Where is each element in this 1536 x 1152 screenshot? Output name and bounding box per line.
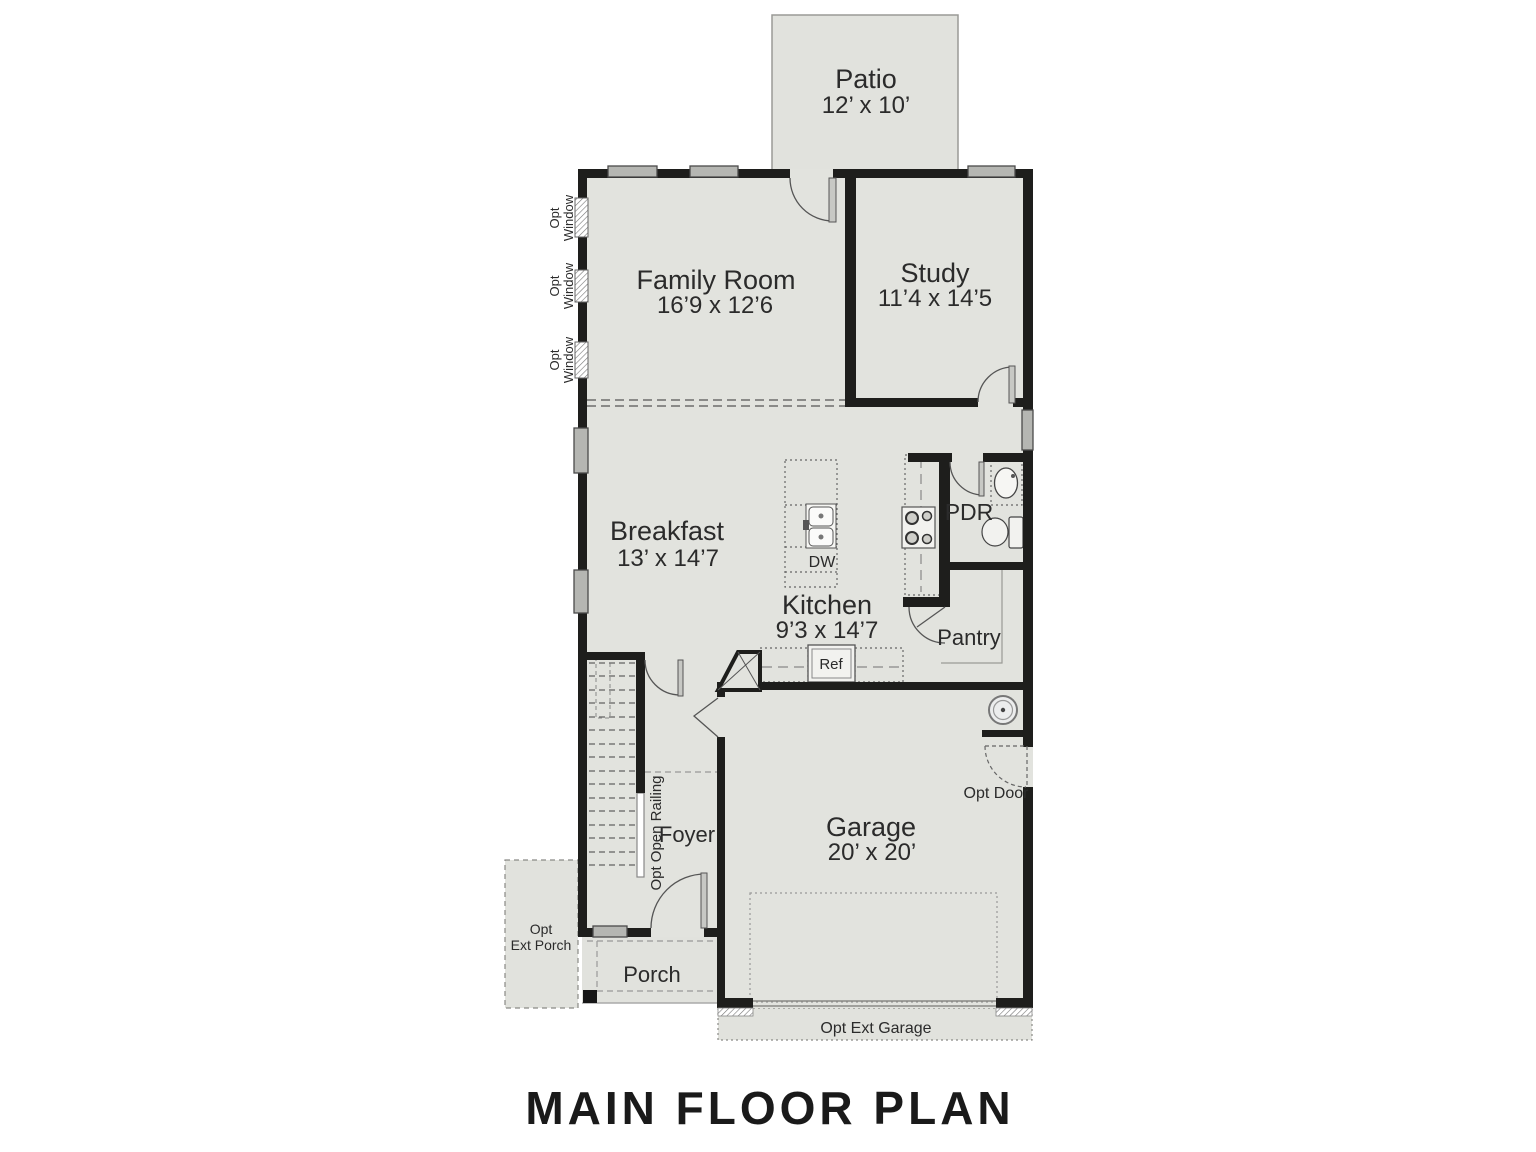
stair-railing	[637, 793, 644, 877]
burner-4	[923, 535, 932, 544]
opt-door-gap	[1023, 747, 1033, 787]
kitchen-label: Kitchen	[782, 590, 872, 620]
breakfast-window-2	[574, 570, 588, 613]
opt-door-label: Opt Door	[964, 785, 1030, 802]
foyer-label: Foyer	[659, 822, 715, 847]
stair-closet-door-panel	[678, 660, 683, 696]
opt-window-1-label-line2: Window	[561, 194, 576, 241]
family-room-label: Family Room	[636, 265, 795, 295]
wall-garage-top	[717, 682, 1033, 690]
wall-garage-left	[717, 737, 725, 998]
wall-pdr-top-right	[983, 453, 1033, 462]
garage-dims: 20’ x 20’	[828, 839, 917, 866]
opt-window-2-label-line2: Window	[561, 262, 576, 309]
wall-study-bottom	[845, 398, 978, 407]
toilet-tank	[1009, 517, 1023, 548]
opt-ext-porch-label-line2: Ext Porch	[511, 937, 572, 953]
opt-window-3-label-line2: Window	[561, 336, 576, 383]
wall-stair-top	[578, 652, 645, 660]
pdr-sink	[995, 468, 1018, 498]
family-room-window-top-1	[608, 166, 657, 177]
study-dims: 11’4 x 14’5	[878, 285, 992, 312]
opt-window-3-label-line1: Opt	[547, 349, 562, 370]
opt-window-3	[575, 342, 588, 378]
floor-plan-page: Patio 12’ x 10’ Family Room 16’9 x 12’6 …	[0, 0, 1536, 1152]
breakfast-label: Breakfast	[610, 516, 725, 546]
water-heater	[989, 696, 1017, 724]
wall-foyer-bottom-right	[704, 928, 725, 937]
wall-garage-bottom-left	[717, 998, 753, 1008]
pantry-label: Pantry	[937, 625, 1001, 650]
patio-dims: 12’ x 10’	[822, 92, 911, 119]
front-door-panel	[701, 873, 707, 928]
patio-label: Patio	[835, 64, 897, 94]
pdr-faucet	[1011, 474, 1015, 478]
floor-plan-drawing: Patio 12’ x 10’ Family Room 16’9 x 12’6 …	[0, 0, 1536, 1152]
wall-family-study	[845, 178, 856, 407]
burner-1	[906, 512, 918, 524]
study-label: Study	[900, 258, 970, 288]
family-room-dims: 16’9 x 12’6	[657, 292, 773, 319]
garage-label: Garage	[826, 812, 916, 842]
breakfast-dims: 13’ x 14’7	[617, 545, 719, 572]
wall-stair-side	[636, 652, 645, 793]
study-door-panel	[1009, 366, 1015, 403]
opt-window-1-label-line1: Opt	[547, 207, 562, 228]
opt-window-1	[575, 198, 588, 237]
hall-window-right	[1022, 410, 1033, 450]
sink-drain-bottom	[819, 535, 824, 540]
dw-label: DW	[809, 554, 837, 571]
opt-open-railing-label: Opt Open Railing	[648, 775, 665, 890]
wall-right-lower	[1023, 787, 1033, 1008]
breakfast-window-1	[574, 428, 588, 473]
porch-label: Porch	[623, 962, 680, 987]
opt-garage-wall-stub-right	[996, 1008, 1032, 1016]
pdr-label: PDR	[945, 499, 994, 525]
pdr-door-panel	[979, 462, 984, 496]
wall-kitchen-pdr	[939, 453, 950, 607]
opt-garage-wall-stub-left	[718, 1008, 753, 1016]
opt-window-2	[575, 270, 588, 302]
porch-window	[593, 926, 627, 937]
patio-door-panel	[829, 178, 836, 222]
porch-column	[583, 990, 597, 1003]
opt-ext-porch-label-line1: Opt	[530, 921, 553, 937]
ref-label: Ref	[819, 656, 843, 673]
burner-2	[923, 512, 932, 521]
wall-pdr-pantry	[939, 562, 1033, 570]
page-title: MAIN FLOOR PLAN	[525, 1082, 1014, 1134]
opt-ext-garage-label: Opt Ext Garage	[820, 1020, 931, 1037]
study-window-top	[968, 166, 1015, 177]
sink-drain-top	[819, 514, 824, 519]
wall-water-heater-stub	[982, 730, 1025, 737]
wall-garage-bottom-right	[996, 998, 1033, 1008]
sink-faucet	[803, 520, 809, 530]
burner-3	[906, 532, 918, 544]
family-room-window-top-2	[690, 166, 738, 177]
wall-kitchen-stub	[903, 597, 945, 607]
opt-window-2-label-line1: Opt	[547, 275, 562, 296]
kitchen-dims: 9’3 x 14’7	[776, 617, 879, 644]
